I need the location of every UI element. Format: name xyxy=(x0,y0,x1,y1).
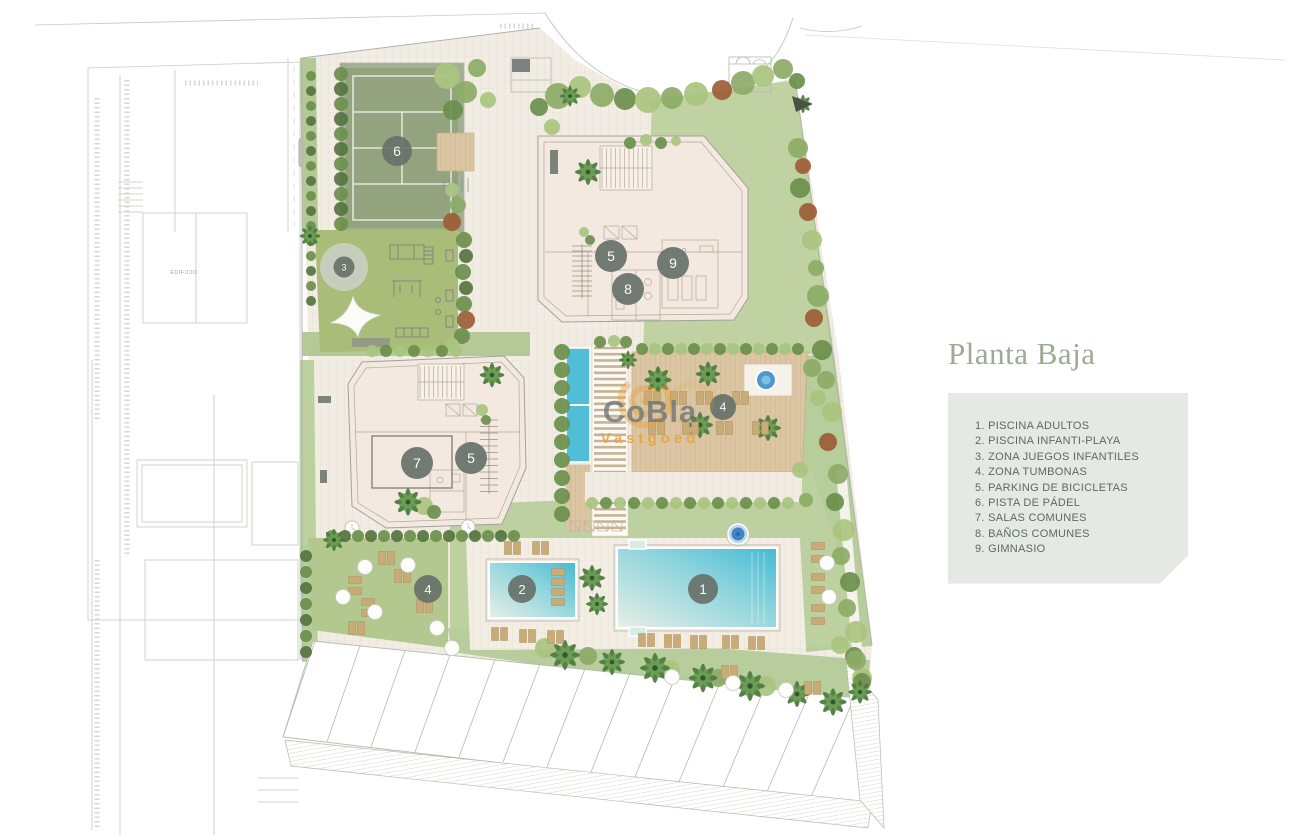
bench xyxy=(318,396,331,403)
plan-marker: 2 xyxy=(508,575,536,603)
walkway xyxy=(585,472,802,502)
legend-list: 1. PISCINA ADULTOS2. PISCINA INFANTI-PLA… xyxy=(975,419,1178,558)
bench xyxy=(550,150,558,174)
page-title: Planta Baja xyxy=(948,336,1204,372)
wood-patio xyxy=(437,133,474,171)
legend-box: 1. PISCINA ADULTOS2. PISCINA INFANTI-PLA… xyxy=(948,393,1188,584)
legend-item: 3. ZONA JUEGOS INFANTILES xyxy=(975,450,1178,465)
plan-marker: 3 xyxy=(334,257,355,278)
legend-item: 2. PISCINA INFANTI-PLAYA xyxy=(975,434,1178,449)
plan-marker: 5 xyxy=(595,240,627,272)
plan-marker: 7 xyxy=(401,447,433,479)
playground xyxy=(315,230,458,352)
plan-marker: 4 xyxy=(414,575,442,603)
legend-item: 5. PARKING DE BICICLETAS xyxy=(975,481,1178,496)
plan-marker: 1 xyxy=(688,574,718,604)
info-panel: Planta Baja 1. PISCINA ADULTOS2. PISCINA… xyxy=(948,336,1204,584)
plan-marker: 4 xyxy=(710,394,736,420)
plan-marker: 6 xyxy=(382,136,412,166)
plan-marker: 8 xyxy=(612,273,644,305)
legend-item: 9. GIMNASIO xyxy=(975,542,1178,557)
site-plan-page: EDIFICIO 12344556789 CoBla Vastgoed Plan… xyxy=(0,0,1290,840)
legend-item: 7. SALAS COMUNES xyxy=(975,511,1178,526)
jacuzzi xyxy=(726,522,750,546)
legend-item: 1. PISCINA ADULTOS xyxy=(975,419,1178,434)
plan-marker: 9 xyxy=(657,247,689,279)
neighbor-building-label: EDIFICIO xyxy=(152,270,216,276)
plan-marker: 5 xyxy=(455,442,487,474)
legend-item: 8. BAÑOS COMUNES xyxy=(975,527,1178,542)
road-curve xyxy=(545,13,1285,98)
bench xyxy=(320,470,327,483)
legend-item: 6. PISTA DE PÁDEL xyxy=(975,496,1178,511)
legend-item: 4. ZONA TUMBONAS xyxy=(975,465,1178,480)
